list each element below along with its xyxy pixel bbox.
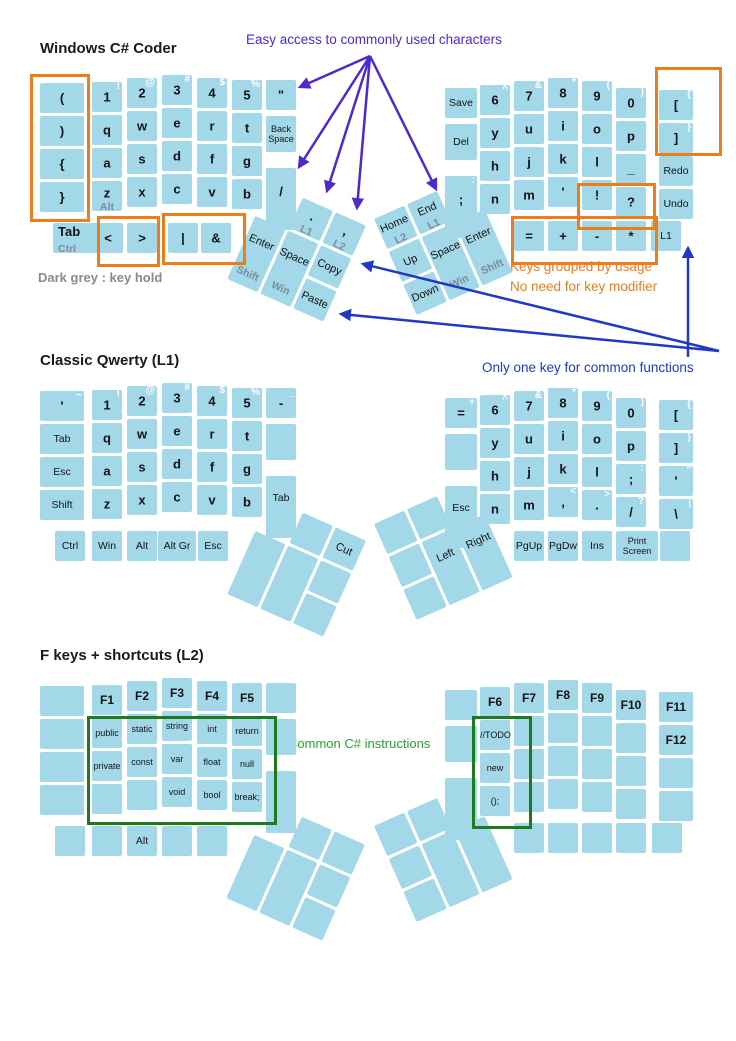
key-l[interactable]: l	[582, 457, 612, 487]
purple-arrow	[300, 56, 370, 87]
blank-key[interactable]: \|	[659, 499, 693, 529]
key-label: p	[616, 439, 646, 454]
key-6[interactable]: 6^	[480, 395, 510, 425]
key-hold-label: Shift	[230, 262, 265, 286]
key-m[interactable]: m	[514, 180, 544, 210]
key-u[interactable]: u	[514, 424, 544, 454]
key-shifted-label: )	[641, 397, 644, 408]
key-hold-label: Win	[263, 276, 298, 300]
key-pgdw[interactable]: PgDw	[548, 531, 578, 561]
key-hold-label: Alt	[92, 201, 122, 213]
key-shifted-label: $	[219, 385, 225, 396]
key-d[interactable]: d	[162, 141, 192, 171]
key-label: e	[162, 116, 192, 131]
section-title-windows-csharp-coder: Windows C# Coder	[40, 40, 177, 57]
key-label: F10	[616, 698, 646, 712]
key-label: o	[582, 432, 612, 447]
key-g[interactable]: g	[232, 454, 262, 484]
key-h[interactable]: h	[480, 151, 510, 181]
key-shifted-label: #	[184, 74, 190, 85]
key-alt[interactable]: Alt	[127, 826, 157, 856]
key-f9[interactable]: F9	[582, 683, 612, 713]
blank-key[interactable]: '"	[659, 466, 693, 496]
key-t[interactable]: t	[232, 421, 262, 451]
key-label: Esc	[198, 540, 228, 552]
blank-key[interactable]: '~	[40, 391, 84, 421]
blank-key[interactable]	[162, 826, 192, 856]
annotation-dark-grey-key-hold: Dark grey : key hold	[38, 270, 162, 285]
blank-key[interactable]	[582, 823, 612, 853]
green-grouping-box	[472, 716, 532, 829]
blank-key[interactable]: ]}	[659, 433, 693, 463]
key-label: k	[548, 462, 578, 477]
key-shifted-label: (	[607, 390, 610, 401]
key-d[interactable]: d	[162, 449, 192, 479]
key-m[interactable]: m	[514, 490, 544, 520]
key-label: y	[480, 126, 510, 141]
key-label: m	[514, 498, 544, 513]
blank-key[interactable]	[266, 424, 296, 460]
key-4[interactable]: 4$	[197, 78, 227, 108]
blank-key[interactable]: "	[266, 80, 296, 110]
key-shifted-label: :	[641, 463, 644, 474]
key-label: t	[232, 121, 262, 136]
key-save[interactable]: Save	[445, 88, 477, 118]
key-2[interactable]: 2@	[127, 386, 157, 416]
key-alt[interactable]: Alt	[127, 531, 157, 561]
key-label: h	[480, 469, 510, 484]
key-label: v	[197, 185, 227, 200]
section-title-classic-qwerty-l1: Classic Qwerty (L1)	[40, 352, 179, 369]
key-label: a	[92, 464, 122, 479]
key-7[interactable]: 7&	[514, 81, 544, 111]
orange-grouping-box	[97, 216, 160, 267]
key-p[interactable]: p	[616, 121, 646, 151]
key-label: l	[582, 465, 612, 480]
key-shifted-label: *	[572, 387, 576, 398]
key-label: i	[548, 429, 578, 444]
key-f3[interactable]: F3	[162, 678, 192, 708]
blank-key[interactable]	[582, 749, 612, 779]
key-k[interactable]: k	[548, 144, 578, 174]
key-7[interactable]: 7&	[514, 391, 544, 421]
key-tab[interactable]: Tab	[40, 424, 84, 454]
key-e[interactable]: e	[162, 416, 192, 446]
key-label: '	[548, 185, 578, 200]
orange-grouping-box	[511, 216, 658, 265]
blank-key[interactable]: .>	[582, 490, 612, 520]
key-label: Print Screen	[616, 536, 658, 556]
key-label: b	[232, 187, 262, 202]
key-i[interactable]: i	[548, 421, 578, 451]
key-q[interactable]: q	[92, 423, 122, 453]
key-shifted-label: "	[686, 465, 691, 476]
key-esc[interactable]: Esc	[40, 457, 84, 487]
key-label: Up	[393, 248, 428, 272]
key-print-screen[interactable]: Print Screen	[616, 531, 658, 561]
purple-arrow	[299, 56, 370, 167]
key-label: a	[92, 156, 122, 171]
key-b[interactable]: b	[232, 487, 262, 517]
orange-grouping-box	[30, 74, 90, 222]
key-e[interactable]: e	[162, 108, 192, 138]
keyboard-layout-diagram: Windows C# Coder Classic Qwerty (L1) F k…	[0, 0, 736, 1041]
key-0[interactable]: 0)	[616, 88, 646, 118]
key-b[interactable]: b	[232, 179, 262, 209]
key-label: x	[127, 185, 157, 200]
key-label: Ins	[582, 540, 612, 552]
key-label: F8	[548, 688, 578, 702]
blank-key[interactable]	[445, 434, 477, 470]
key-label: Esc	[40, 466, 84, 478]
key-label: r	[197, 119, 227, 134]
key-shifted-label: *	[572, 77, 576, 88]
orange-grouping-box	[162, 213, 246, 265]
key-undo[interactable]: Undo	[659, 189, 693, 219]
key-p[interactable]: p	[616, 431, 646, 461]
blank-key[interactable]: ,<	[548, 487, 578, 517]
key-f10[interactable]: F10	[616, 690, 646, 720]
key-f4[interactable]: F4	[197, 681, 227, 711]
key-label: Paste	[297, 288, 332, 312]
key-3[interactable]: 3#	[162, 383, 192, 413]
key-o[interactable]: o	[582, 424, 612, 454]
blank-key[interactable]	[616, 723, 646, 753]
key-shifted-label: !	[117, 389, 120, 400]
key-f1[interactable]: F1	[92, 685, 122, 715]
key-f5[interactable]: F5	[232, 683, 262, 713]
blank-key[interactable]	[40, 752, 84, 782]
key-label: j	[514, 155, 544, 170]
key-label: F4	[197, 689, 227, 703]
key-2[interactable]: 2@	[127, 78, 157, 108]
annotation-only-one-key: Only one key for common functions	[482, 360, 694, 375]
blank-key[interactable]: /?	[616, 497, 646, 527]
key-label: w	[127, 427, 157, 442]
annotation-keys-grouped-line2: No need for key modifier	[510, 277, 657, 297]
key-label: c	[162, 182, 192, 197]
blank-key[interactable]: =+	[445, 398, 477, 428]
key-label: z	[92, 186, 122, 201]
blank-key[interactable]	[40, 686, 84, 716]
key-1[interactable]: 1!	[92, 390, 122, 420]
key-shifted-label: @	[145, 385, 155, 396]
green-grouping-box	[87, 716, 277, 825]
key-label: Alt	[127, 835, 157, 847]
key-4[interactable]: 4$	[197, 386, 227, 416]
key-w[interactable]: w	[127, 419, 157, 449]
key-shifted-label: +	[469, 397, 475, 408]
key-label: l	[582, 155, 612, 170]
key-3[interactable]: 3#	[162, 75, 192, 105]
blank-key[interactable]	[582, 782, 612, 812]
key-label: f	[197, 460, 227, 475]
key-j[interactable]: j	[514, 457, 544, 487]
key-label: r	[197, 427, 227, 442]
blank-key[interactable]	[548, 713, 578, 743]
key-label: z	[92, 497, 122, 512]
key-label: d	[162, 457, 192, 472]
key-label: Space	[428, 238, 463, 262]
key-shifted-label: ^	[502, 394, 508, 405]
key-shifted-label: {	[687, 399, 691, 410]
key-f12[interactable]: F12	[659, 725, 693, 755]
key-g[interactable]: g	[232, 146, 262, 176]
key-label: Alt	[127, 540, 157, 552]
key-label: Win	[92, 540, 122, 552]
key-label: Down	[408, 281, 443, 305]
key-label: b	[232, 495, 262, 510]
blank-key[interactable]: '	[548, 177, 578, 207]
key-redo[interactable]: Redo	[659, 156, 693, 186]
key-shifted-label: $	[219, 77, 225, 88]
key-label: F2	[127, 689, 157, 703]
key-h[interactable]: h	[480, 461, 510, 491]
key-6[interactable]: 6^	[480, 85, 510, 115]
key-y[interactable]: y	[480, 428, 510, 458]
key-shifted-label: !	[117, 81, 120, 92]
key-label: q	[92, 123, 122, 138]
key-shifted-label: ^	[502, 84, 508, 95]
key-hold-label: Win	[442, 270, 477, 294]
blank-key[interactable]	[548, 746, 578, 776]
blank-key[interactable]	[659, 758, 693, 788]
key-o[interactable]: o	[582, 114, 612, 144]
key-win[interactable]: Win	[92, 531, 122, 561]
key-shifted-label: >	[604, 489, 610, 500]
key-alt-gr[interactable]: Alt Gr	[158, 531, 196, 561]
key-label: Cut	[327, 537, 362, 561]
blue-arrow	[341, 314, 719, 351]
key-ctrl[interactable]: Ctrl	[55, 531, 85, 561]
key-label: o	[582, 122, 612, 137]
key-shifted-label: |	[688, 498, 691, 509]
key-shifted-label: (	[607, 80, 610, 91]
purple-arrow	[327, 56, 370, 191]
key-label: Left	[428, 543, 463, 567]
blank-key[interactable]	[548, 823, 578, 853]
key-f[interactable]: f	[197, 144, 227, 174]
key-f7[interactable]: F7	[514, 683, 544, 713]
key-a[interactable]: a	[92, 148, 122, 178]
blank-key[interactable]	[40, 719, 84, 749]
orange-grouping-box	[655, 67, 722, 156]
key-del[interactable]: Del	[445, 124, 477, 160]
key-f6[interactable]: F6	[480, 687, 510, 717]
blank-key[interactable]	[659, 791, 693, 821]
key-label: PgDw	[548, 540, 578, 552]
key-back-space[interactable]: Back Space	[266, 116, 296, 152]
key-label: F5	[232, 691, 262, 705]
key-label: n	[480, 192, 510, 207]
key-label: Copy	[312, 255, 347, 279]
key-i[interactable]: i	[548, 111, 578, 141]
key-c[interactable]: c	[162, 174, 192, 204]
key-shifted-label: ?	[638, 496, 644, 507]
blank-key[interactable]	[266, 683, 296, 713]
key-shifted-label: ~	[76, 390, 82, 401]
key-label: PgUp	[514, 540, 544, 552]
section-title-fkeys-shortcuts-l2: F keys + shortcuts (L2)	[40, 647, 204, 664]
key-l[interactable]: l	[582, 147, 612, 177]
key-hold-label: Shift	[475, 255, 510, 279]
blank-key[interactable]	[548, 779, 578, 809]
key-t[interactable]: t	[232, 113, 262, 143]
key-shifted-label: #	[184, 382, 190, 393]
key-label: Tab	[40, 433, 84, 445]
key-z[interactable]: z	[92, 489, 122, 519]
key-label: Space	[277, 245, 312, 269]
key-label: q	[92, 431, 122, 446]
blank-key[interactable]: -_	[266, 388, 296, 418]
purple-arrow	[370, 56, 436, 189]
key-u[interactable]: u	[514, 114, 544, 144]
key-label: p	[616, 129, 646, 144]
key-label: g	[232, 462, 262, 477]
key-label: Shift	[40, 499, 84, 511]
key-label: s	[127, 152, 157, 167]
key-label: _	[616, 162, 646, 177]
classic-qwerty-l1-left-thumb-cluster: Cut	[227, 498, 366, 637]
key-j[interactable]: j	[514, 147, 544, 177]
key-label: m	[514, 188, 544, 203]
key-5[interactable]: 5%	[232, 80, 262, 110]
purple-arrow	[357, 56, 370, 208]
key-label: Undo	[659, 198, 693, 210]
key-shifted-label: <	[570, 486, 576, 497]
key-shifted-label: %	[251, 79, 260, 90]
key-label: s	[127, 460, 157, 475]
blank-key[interactable]	[652, 823, 682, 853]
key-x[interactable]: x	[127, 485, 157, 515]
key-s[interactable]: s	[127, 452, 157, 482]
key-shifted-label: %	[251, 387, 260, 398]
key-q[interactable]: q	[92, 115, 122, 145]
key-v[interactable]: v	[197, 177, 227, 207]
key-label: k	[548, 152, 578, 167]
key-label: F6	[480, 695, 510, 709]
blank-key[interactable]	[582, 716, 612, 746]
blank-key[interactable]	[616, 823, 646, 853]
key-shifted-label: @	[145, 77, 155, 88]
key-shifted-label: )	[641, 87, 644, 98]
key-label: Del	[445, 136, 477, 148]
key-label: d	[162, 149, 192, 164]
key-label: Enter	[461, 224, 496, 248]
blank-key[interactable]: [{	[659, 400, 693, 430]
key-8[interactable]: 8*	[548, 388, 578, 418]
key-esc[interactable]: Esc	[198, 531, 228, 561]
key-label: F3	[162, 686, 192, 700]
key-label: t	[232, 429, 262, 444]
key-w[interactable]: w	[127, 111, 157, 141]
key-label: u	[514, 432, 544, 447]
key-label: F9	[582, 691, 612, 705]
key-1[interactable]: 1!	[92, 82, 122, 112]
key-c[interactable]: c	[162, 482, 192, 512]
key-label: u	[514, 122, 544, 137]
blank-key[interactable]	[40, 785, 84, 815]
annotation-common-csharp: Common C# instructions	[288, 736, 430, 751]
key-9[interactable]: 9(	[582, 391, 612, 421]
key-f[interactable]: f	[197, 452, 227, 482]
key-f11[interactable]: F11	[659, 692, 693, 722]
key-shift[interactable]: Shift	[40, 490, 84, 520]
key-label: F1	[92, 693, 122, 707]
key-label: j	[514, 465, 544, 480]
key-label: y	[480, 436, 510, 451]
key-label: c	[162, 490, 192, 505]
key-label: F7	[514, 691, 544, 705]
key-v[interactable]: v	[197, 485, 227, 515]
key-r[interactable]: r	[197, 419, 227, 449]
key-label: Back Space	[266, 124, 296, 144]
annotation-easy-access: Easy access to commonly used characters	[246, 32, 502, 47]
key-shifted-label: &	[535, 390, 542, 401]
blank-key[interactable]: _	[616, 154, 646, 184]
key-pgup[interactable]: PgUp	[514, 531, 544, 561]
key-y[interactable]: y	[480, 118, 510, 148]
key-label: Right	[461, 529, 496, 553]
key-r[interactable]: r	[197, 111, 227, 141]
key-label: g	[232, 154, 262, 169]
key-label: Ctrl	[55, 540, 85, 552]
blank-key[interactable]	[616, 756, 646, 786]
key-f8[interactable]: F8	[548, 680, 578, 710]
key-label: x	[127, 493, 157, 508]
key-x[interactable]: x	[127, 177, 157, 207]
key-shifted-label: }	[687, 432, 691, 443]
key-label: w	[127, 119, 157, 134]
key-ins[interactable]: Ins	[582, 531, 612, 561]
key-label: h	[480, 159, 510, 174]
blank-key[interactable]	[197, 826, 227, 856]
key-f2[interactable]: F2	[127, 681, 157, 711]
key-0[interactable]: 0)	[616, 398, 646, 428]
key-5[interactable]: 5%	[232, 388, 262, 418]
key-shifted-label: &	[535, 80, 542, 91]
key-label: v	[197, 493, 227, 508]
blank-key[interactable]	[55, 826, 85, 856]
key-label: i	[548, 119, 578, 134]
key-z[interactable]: zAlt	[92, 181, 122, 211]
blank-key[interactable]	[660, 531, 690, 561]
blank-key[interactable]: ;:	[616, 464, 646, 494]
key-label: Save	[445, 97, 477, 109]
key-label: Redo	[659, 165, 693, 177]
key-shifted-label: _	[288, 387, 294, 398]
key-label: Alt Gr	[158, 540, 196, 552]
key-9[interactable]: 9(	[582, 81, 612, 111]
key-label: F12	[659, 733, 693, 747]
blank-key[interactable]	[616, 789, 646, 819]
key-a[interactable]: a	[92, 456, 122, 486]
key-s[interactable]: s	[127, 144, 157, 174]
key-k[interactable]: k	[548, 454, 578, 484]
key-label: "	[266, 88, 296, 103]
key-label: F11	[659, 700, 693, 714]
key-label: f	[197, 152, 227, 167]
blank-key[interactable]	[92, 826, 122, 856]
key-8[interactable]: 8*	[548, 78, 578, 108]
key-label: e	[162, 424, 192, 439]
key-label: Enter	[244, 231, 279, 255]
